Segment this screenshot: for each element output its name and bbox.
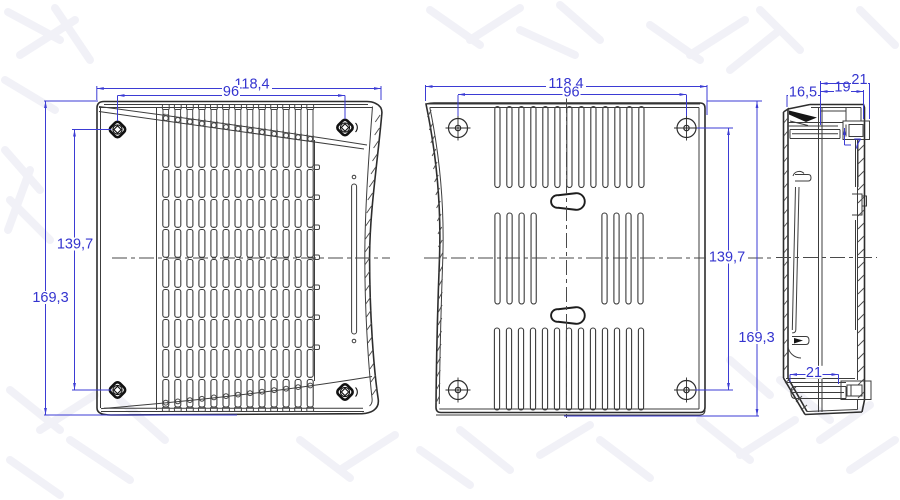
svg-text:96: 96 <box>563 85 579 101</box>
svg-text:169,3: 169,3 <box>738 330 774 346</box>
svg-text:96: 96 <box>223 84 239 100</box>
svg-text:16,5: 16,5 <box>789 85 817 101</box>
svg-text:169,3: 169,3 <box>32 290 68 306</box>
svg-text:21: 21 <box>851 72 867 88</box>
svg-text:139,7: 139,7 <box>57 237 93 253</box>
svg-text:139,7: 139,7 <box>709 250 745 266</box>
svg-text:21: 21 <box>806 365 822 381</box>
svg-text:7: 7 <box>854 137 862 153</box>
svg-text:19: 19 <box>834 80 850 96</box>
